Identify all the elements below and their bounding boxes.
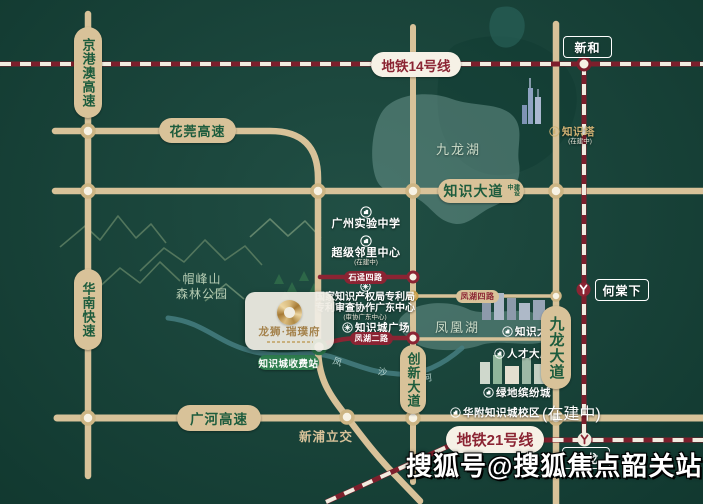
community-icon	[360, 235, 372, 247]
xinhe-station-marker	[578, 58, 590, 70]
poi-hf-school: 华附知识城校区 (在建中)	[450, 400, 601, 424]
plaza-icon	[342, 322, 353, 333]
poi-knowledge-tower-status: (在建中)	[556, 138, 604, 146]
label-zhishi-avenue: 知识大道 建设中	[438, 179, 524, 203]
poi-knowledge-tower: 知识塔	[549, 124, 595, 139]
metro-logo-zhenlong-icon	[577, 432, 592, 447]
park-name-line2: 森林公园	[166, 287, 238, 302]
zhishi-avenue-text: 知识大道	[444, 181, 504, 201]
label-toll-station: 知识城收费站	[258, 355, 319, 370]
label-metro-line14: 地铁14号线	[371, 52, 461, 77]
label-shijing4-road: 石迳四路	[344, 271, 387, 284]
metro-logo-hetangxia-icon	[576, 282, 591, 297]
label-chuangxin-avenue: 创新大道	[400, 345, 426, 414]
location-map: 京港澳高速 华南快速 花莞高速 知识大道 建设中 创新大道 九龙大道 广河高速 …	[0, 0, 703, 504]
poi-status: (在建中)	[542, 400, 601, 424]
project-logo-card: 龙狮·瑞璞府	[245, 292, 334, 350]
project-name-subtitle	[267, 341, 313, 343]
station-hetangxia: 何棠下	[595, 279, 649, 301]
poi-greenland-mall: 绿地缤纷城	[483, 385, 551, 400]
poi-name: 超级邻里中心	[332, 247, 401, 259]
label-jiulong-avenue: 九龙大道	[541, 306, 571, 389]
poi-status: (在建中)	[568, 138, 592, 146]
label-guanghe-expressway: 广河高速	[177, 405, 261, 431]
poi-name: 绿地缤纷城	[496, 385, 551, 400]
school-icon	[360, 206, 372, 218]
label-jiulong-lake: 九龙湖	[436, 139, 481, 158]
project-name: 龙狮·瑞璞府	[258, 327, 320, 338]
poi-neighborhood-center: 超级邻里中心 (在建中)	[316, 235, 416, 267]
label-huanan-expressway: 华南快速	[74, 269, 102, 350]
building-icon	[494, 348, 505, 359]
poi-name: 华附知识城校区	[463, 405, 540, 420]
label-maofengshan-park: 帽峰山 森林公园	[166, 272, 238, 302]
label-fenghu4-road: 凤湖四路	[456, 290, 499, 303]
tower-icon	[549, 126, 560, 137]
building-icon	[502, 326, 513, 337]
jiulong-lake-shape	[372, 94, 519, 224]
sohu-watermark: 搜狐号@搜狐焦点韶关站	[406, 446, 702, 483]
park-name-line1: 帽峰山	[166, 272, 238, 287]
label-fenghu2-road: 凤湖二路	[350, 332, 393, 345]
zhishi-avenue-status: 建设中	[506, 184, 519, 199]
mall-icon	[483, 387, 494, 398]
poi-status: (在建中)	[354, 259, 378, 267]
label-xinpu-interchange: 新浦立交	[299, 426, 353, 445]
label-huaguan-expressway: 花莞高速	[159, 118, 236, 143]
station-xinhe: 新和	[563, 36, 612, 58]
poi-experimental-school: 广州实验中学	[318, 206, 414, 230]
label-jinggangao-expressway: 京港澳高速	[74, 27, 102, 118]
poi-name: 广州实验中学	[332, 218, 401, 230]
poi-name: 知识塔	[562, 124, 595, 139]
project-emblem-icon	[277, 300, 302, 325]
label-fenghuang-lake: 凤凰湖	[435, 317, 480, 336]
school-icon	[450, 407, 461, 418]
